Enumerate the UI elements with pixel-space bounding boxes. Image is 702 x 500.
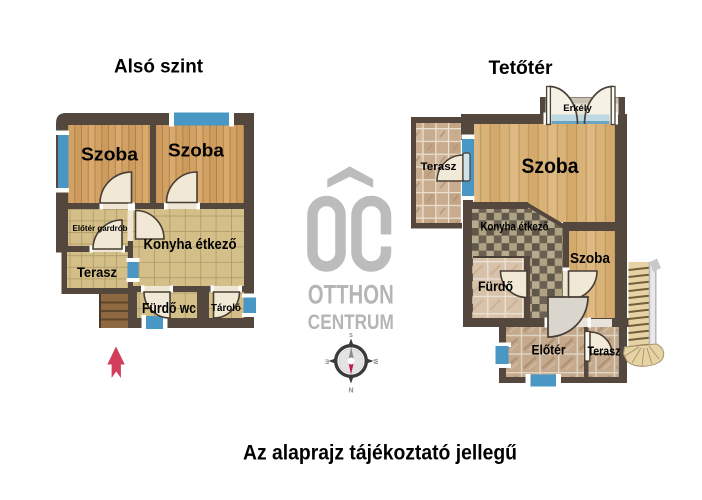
svg-text:Szoba: Szoba [570,250,611,267]
svg-text:Szoba: Szoba [81,145,139,165]
svg-text:Erkély: Erkély [563,103,592,114]
svg-text:S: S [349,333,353,339]
svg-text:Szoba: Szoba [168,141,225,161]
svg-text:OTTHON: OTTHON [308,280,394,310]
svg-text:E: E [325,358,329,364]
svg-text:Konyha étkező: Konyha étkező [481,222,549,234]
svg-text:Az alaprajz tájékoztató jelleg: Az alaprajz tájékoztató jellegű [243,442,517,465]
svg-text:Alsó szint: Alsó szint [114,56,203,78]
svg-text:Terasz: Terasz [421,161,458,173]
svg-text:Tetőtér: Tetőtér [489,57,553,79]
svg-text:Terasz: Terasz [588,345,621,359]
svg-text:CENTRUM: CENTRUM [308,311,394,334]
svg-text:Tároló: Tároló [211,302,241,314]
svg-text:Fürdő wc: Fürdő wc [142,301,196,317]
svg-text:N: N [348,388,353,395]
svg-text:W: W [372,359,378,365]
svg-text:Fürdő: Fürdő [478,279,513,294]
svg-text:Konyha étkező: Konyha étkező [144,236,237,253]
svg-text:Terasz: Terasz [77,265,117,280]
svg-text:Szoba: Szoba [522,154,580,178]
svg-text:Előtér gardrób: Előtér gardrób [73,223,128,233]
svg-text:Előtér: Előtér [532,342,566,358]
